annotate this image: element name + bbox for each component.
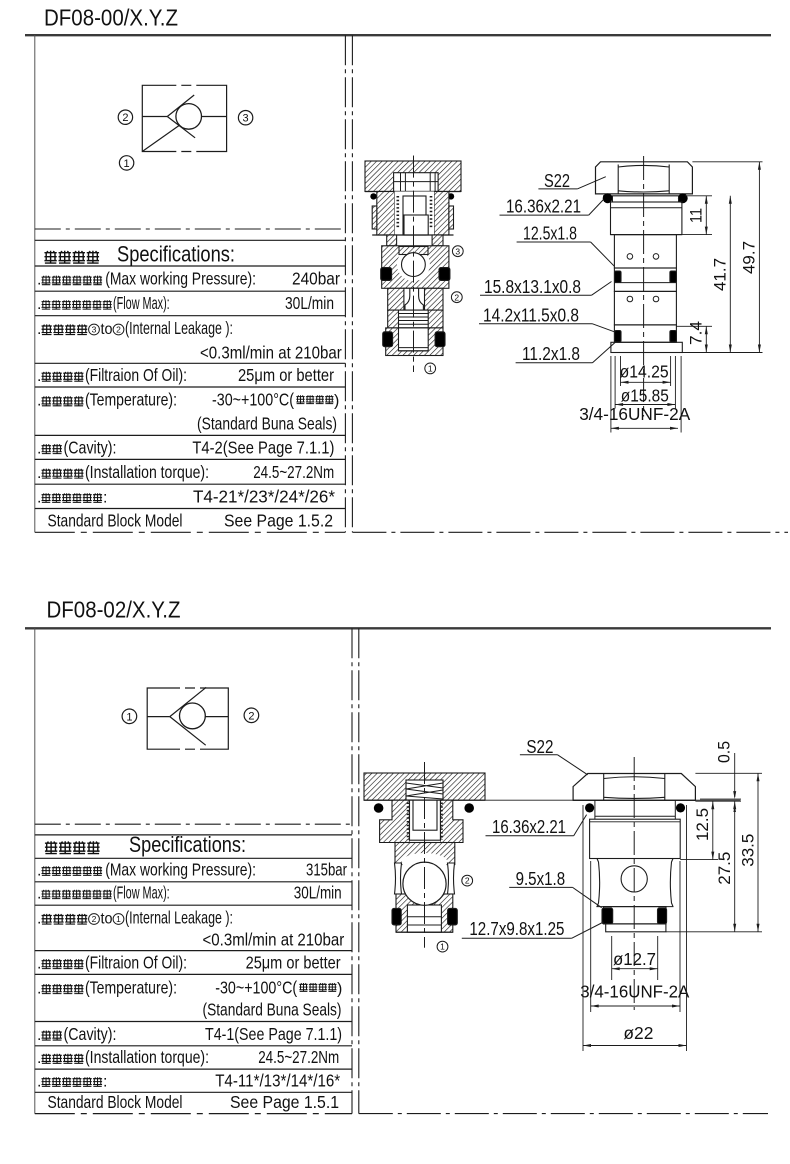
svg-text:12.5: 12.5 [693,808,712,841]
svg-text:<0.3ml/min at 210bar: <0.3ml/min at 210bar [203,930,345,950]
svg-text:.: . [37,272,41,289]
svg-text::: : [103,489,107,506]
svg-text:30L/min: 30L/min [285,293,334,313]
svg-text:2: 2 [116,325,121,335]
svg-text:ø15.85: ø15.85 [621,386,669,406]
svg-text:ø14.25: ø14.25 [620,362,669,382]
svg-text:240bar: 240bar [292,269,340,289]
svg-text:.: . [37,489,41,506]
svg-text:.: . [37,886,41,903]
svg-text:2: 2 [92,914,97,924]
svg-text:.: . [37,368,41,385]
svg-text:): ) [334,393,339,410]
svg-text:(Standard Buna Seals): (Standard Buna Seals) [197,413,337,433]
svg-text:2: 2 [465,876,470,886]
svg-text:.: . [37,393,41,410]
svg-text:7.4: 7.4 [687,321,706,345]
svg-text::: : [103,1073,107,1090]
svg-text:3: 3 [243,113,249,125]
svg-text:S22: S22 [544,170,570,191]
svg-text:-30~+100°C(: -30~+100°C( [215,977,297,997]
svg-text:.: . [37,296,41,313]
svg-text:(Temperature):: (Temperature): [85,390,177,410]
svg-text:<0.3ml/min at 210bar: <0.3ml/min at 210bar [200,342,342,362]
svg-text:S22: S22 [526,736,553,757]
svg-text:(Flow Max):: (Flow Max): [113,293,170,313]
svg-text:ø12.7: ø12.7 [613,949,656,969]
svg-text:2: 2 [122,112,128,124]
svg-text:See Page 1.5.1: See Page 1.5.1 [230,1092,339,1112]
svg-text:DF08-00/X.Y.Z: DF08-00/X.Y.Z [44,5,178,31]
svg-text:-30~+100°C(: -30~+100°C( [212,390,294,410]
svg-text:1: 1 [126,711,132,723]
svg-text:(Cavity):: (Cavity): [64,437,117,457]
svg-text:3/4-16UNF-2A: 3/4-16UNF-2A [579,404,690,424]
svg-text:1: 1 [116,914,121,924]
svg-text:14.2x11.5x0.8: 14.2x11.5x0.8 [483,305,579,326]
svg-text:1: 1 [124,158,130,170]
svg-text:T4-1(See Page 7.1.1): T4-1(See Page 7.1.1) [205,1024,342,1044]
svg-text:(Filtraion Of Oil):: (Filtraion Of Oil): [85,365,187,385]
svg-text:16.36x2.21: 16.36x2.21 [492,816,566,837]
svg-text:0.5: 0.5 [715,741,734,763]
svg-text:T4-11*/13*/14*/16*: T4-11*/13*/14*/16* [215,1070,340,1090]
svg-text:33.5: 33.5 [738,834,757,867]
svg-text:(Standard Buna Seals): (Standard Buna Seals) [203,1000,342,1020]
svg-text:.: . [37,862,41,879]
svg-text:12.7x9.8x1.25: 12.7x9.8x1.25 [469,918,564,939]
svg-text:11.2x1.8: 11.2x1.8 [522,343,580,364]
svg-text:16.36x2.21: 16.36x2.21 [506,195,581,216]
svg-text:to: to [101,321,113,338]
svg-text:2: 2 [248,710,254,722]
svg-text:11: 11 [687,208,706,223]
svg-text:3: 3 [455,246,460,256]
svg-text:(Internal Leakage ):: (Internal Leakage ): [125,908,233,928]
svg-text:41.7: 41.7 [711,258,730,291]
svg-text:3/4-16UNF-2A: 3/4-16UNF-2A [580,982,689,1002]
svg-text:Specifications:: Specifications: [117,242,235,267]
svg-text:(Installation torque):: (Installation torque): [85,462,209,482]
svg-text:1: 1 [440,942,445,952]
svg-text:315bar: 315bar [306,859,347,879]
svg-text:.: . [37,955,41,972]
svg-text:.: . [37,1050,41,1067]
svg-text:15.8x13.1x0.8: 15.8x13.1x0.8 [484,276,581,297]
svg-text:.: . [37,465,41,482]
svg-text:(Max working Pressure):: (Max working Pressure): [105,859,256,879]
svg-text:.: . [37,980,41,997]
svg-text:): ) [337,980,342,997]
svg-text:(Internal Leakage ):: (Internal Leakage ): [125,318,233,338]
svg-text:2: 2 [454,292,459,302]
svg-text:27.5: 27.5 [715,852,734,885]
svg-text:24.5~27.2Nm: 24.5~27.2Nm [253,462,334,482]
svg-text:.: . [37,1027,41,1044]
svg-text:T4-21*/23*/24*/26*: T4-21*/23*/24*/26* [193,486,335,506]
svg-text:Standard Block Model: Standard Block Model [48,1092,183,1112]
svg-text:Specifications:: Specifications: [129,832,246,857]
svg-text:25μm or better: 25μm or better [246,952,341,972]
svg-text:25μm or better: 25μm or better [238,365,334,385]
svg-text:3: 3 [92,325,97,335]
svg-text:49.7: 49.7 [740,241,759,274]
svg-text:1: 1 [428,363,433,373]
svg-text:24.5~27.2Nm: 24.5~27.2Nm [258,1047,339,1067]
svg-text:.: . [37,440,41,457]
svg-text:See Page 1.5.2: See Page 1.5.2 [224,511,333,531]
svg-text:.: . [37,911,41,928]
svg-text:(Temperature):: (Temperature): [85,977,177,997]
svg-text:ø22: ø22 [623,1023,653,1043]
svg-text:(Cavity):: (Cavity): [64,1024,117,1044]
svg-text:9.5x1.8: 9.5x1.8 [516,868,566,889]
svg-text:DF08-02/X.Y.Z: DF08-02/X.Y.Z [47,597,181,623]
svg-text:Standard Block Model: Standard Block Model [48,511,183,531]
svg-text:(Max working Pressure):: (Max working Pressure): [105,269,256,289]
svg-text:(Flow Max):: (Flow Max): [113,883,170,903]
svg-text:12.5x1.8: 12.5x1.8 [523,223,577,244]
svg-text:.: . [37,321,41,338]
svg-text:to: to [101,911,113,928]
svg-text:(Filtraion Of Oil):: (Filtraion Of Oil): [85,952,187,972]
svg-text:(Installation torque):: (Installation torque): [85,1047,209,1067]
svg-text:.: . [37,1073,41,1090]
svg-text:30L/min: 30L/min [294,883,342,903]
svg-text:T4-2(See Page 7.1.1): T4-2(See Page 7.1.1) [192,437,334,457]
